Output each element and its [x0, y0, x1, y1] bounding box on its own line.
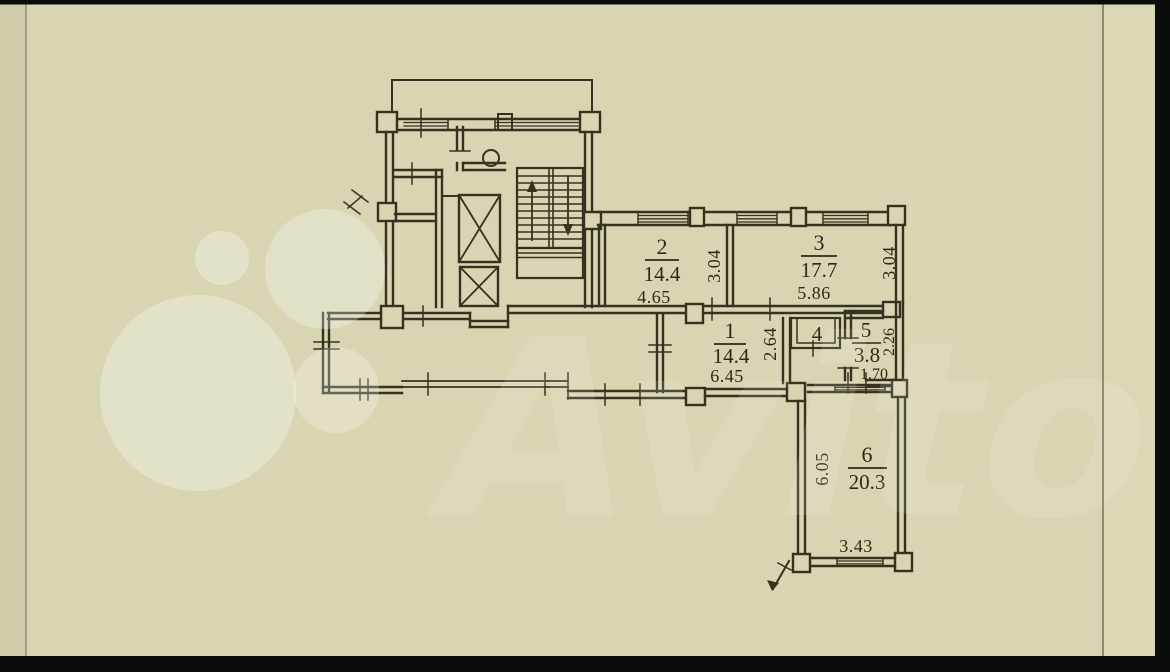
floor-plan-image: 2 14.4 4.65 3.04 3 17.7 5.86 3.04 1 14.4… — [0, 0, 1170, 672]
photo-border-right — [1155, 0, 1170, 672]
floor-plan-photo: 2 14.4 4.65 3.04 3 17.7 5.86 3.04 1 14.4… — [0, 0, 1170, 672]
pillar — [690, 208, 704, 226]
pillar — [580, 112, 600, 132]
photo-border-top — [0, 0, 1170, 5]
watermark-brand-text: Avito — [413, 289, 1170, 574]
pillar — [791, 208, 806, 226]
room-2-depth-dim: 3.04 — [704, 249, 724, 283]
room-2-area: 14.4 — [644, 262, 681, 286]
room-3-number: 3 — [814, 230, 825, 255]
room-3-area: 17.7 — [801, 258, 838, 282]
pillar — [888, 206, 905, 225]
paper-left-strip — [0, 0, 26, 672]
pillar — [377, 112, 397, 132]
photo-border-bottom — [0, 656, 1170, 672]
room-2-number: 2 — [657, 234, 668, 259]
pillar — [378, 203, 396, 221]
room-3-depth-dim: 3.04 — [879, 246, 899, 280]
pillar — [381, 306, 403, 328]
